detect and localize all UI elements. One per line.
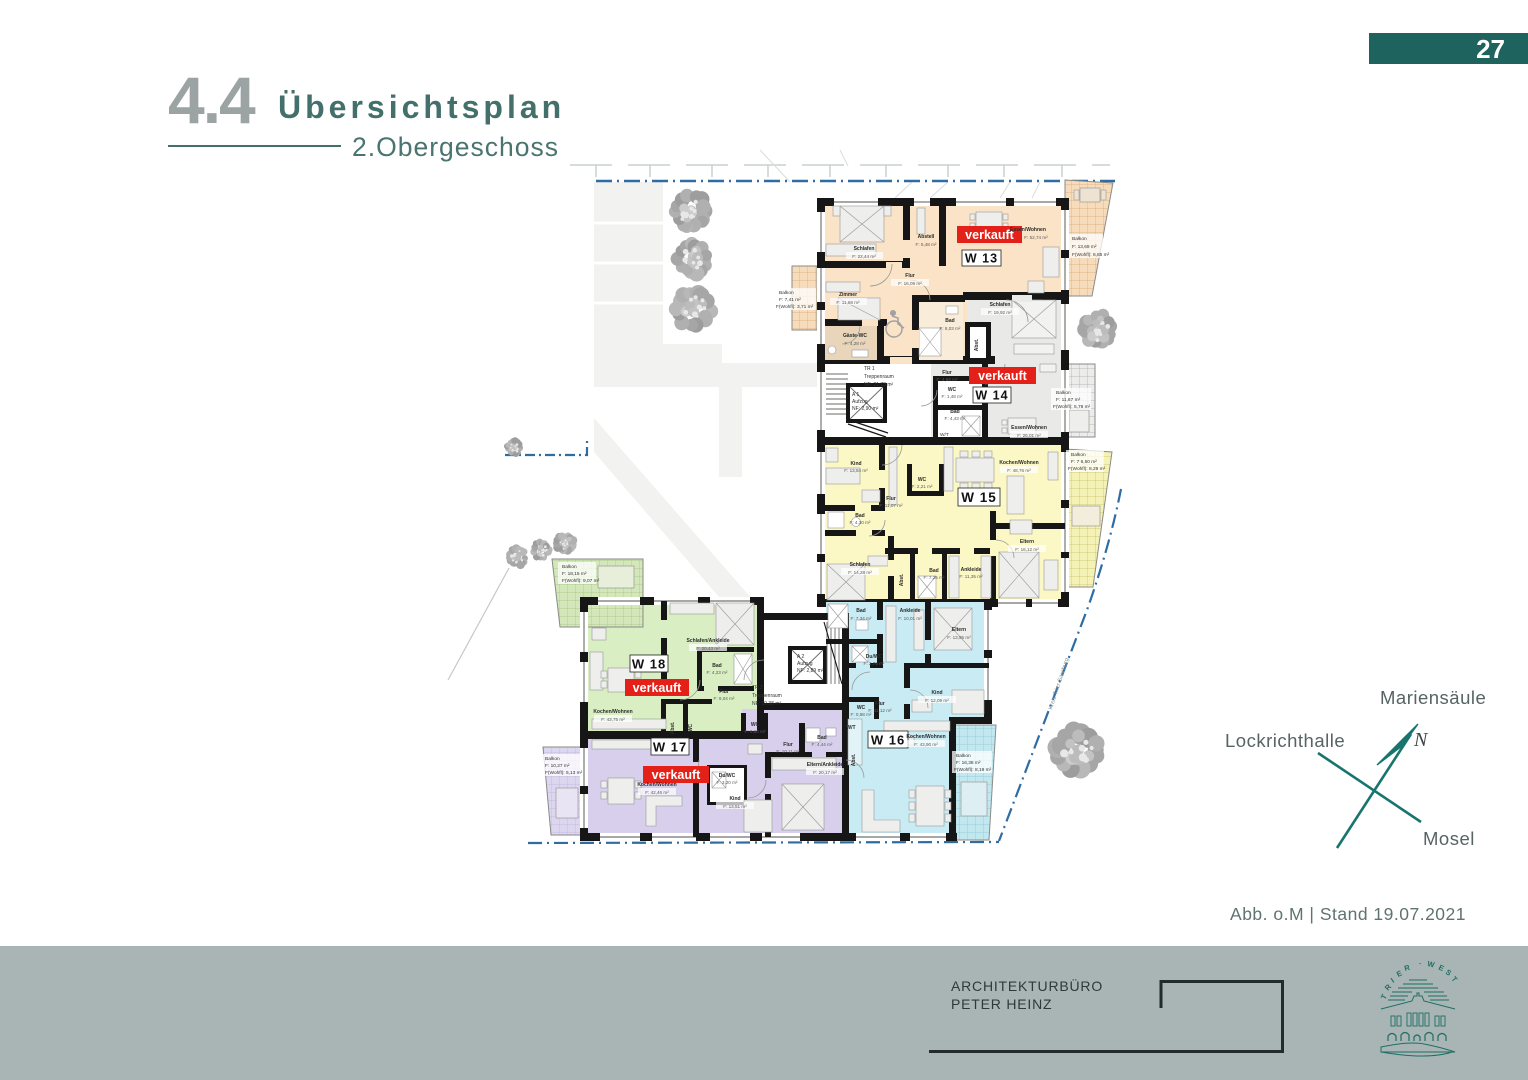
svg-text:Kochen/Wohnen: Kochen/Wohnen bbox=[637, 782, 676, 788]
svg-text:W 18: W 18 bbox=[632, 657, 666, 672]
svg-text:F: 52,74 m²: F: 52,74 m² bbox=[1024, 235, 1048, 240]
svg-text:W 17: W 17 bbox=[653, 740, 687, 755]
svg-text:W 15: W 15 bbox=[961, 490, 997, 505]
svg-text:F: 42,46 m²: F: 42,46 m² bbox=[645, 790, 669, 795]
svg-text:F(Wohfl): 5,78 m²: F(Wohfl): 5,78 m² bbox=[1053, 404, 1091, 410]
svg-text:F: 1,48 m²: F: 1,48 m² bbox=[942, 394, 963, 399]
svg-text:Du/WC: Du/WC bbox=[866, 654, 883, 660]
svg-text:Bad: Bad bbox=[712, 663, 721, 669]
svg-text:TR 1: TR 1 bbox=[864, 366, 875, 372]
svg-text:WC: WC bbox=[751, 722, 760, 728]
svg-text:W/T: W/T bbox=[940, 432, 949, 438]
svg-text:F: 11,07 m²: F: 11,07 m² bbox=[879, 503, 903, 508]
svg-text:F: 10,01 m²: F: 10,01 m² bbox=[898, 616, 922, 621]
svg-text:F: 4,28 m²: F: 4,28 m² bbox=[845, 341, 866, 346]
svg-text:Übersichtsplan: Übersichtsplan bbox=[278, 89, 565, 125]
svg-text:F: 48,76 m²: F: 48,76 m² bbox=[1007, 468, 1031, 473]
svg-text:F: 19,92 m²: F: 19,92 m² bbox=[988, 310, 1012, 315]
svg-text:NF: 19,38 m²: NF: 19,38 m² bbox=[752, 701, 782, 707]
svg-text:F: 14,28 m²: F: 14,28 m² bbox=[848, 570, 872, 575]
svg-text:F: 3,20 m²: F: 3,20 m² bbox=[717, 780, 738, 785]
svg-text:2.Obergeschoss: 2.Obergeschoss bbox=[352, 132, 559, 162]
svg-text:F(Wohfl): 9,07 m²: F(Wohfl): 9,07 m² bbox=[562, 578, 600, 584]
svg-text:Balkon: Balkon bbox=[1071, 452, 1086, 458]
svg-text:F: 4,69 m²: F: 4,69 m² bbox=[937, 377, 958, 382]
svg-text:WC: WC bbox=[948, 387, 957, 393]
svg-text:F: 13,69 m²: F: 13,69 m² bbox=[1072, 244, 1097, 250]
svg-text:Du/WC: Du/WC bbox=[719, 773, 736, 779]
svg-text:F: 0,60 m²: F: 0,60 m² bbox=[745, 729, 766, 734]
svg-text:Abst.: Abst. bbox=[974, 338, 980, 351]
svg-text:F: 20,43 m²: F: 20,43 m² bbox=[696, 646, 720, 651]
svg-text:F: 7,34 m²: F: 7,34 m² bbox=[851, 616, 872, 621]
svg-text:F: 10,11 m²: F: 10,11 m² bbox=[776, 749, 800, 754]
svg-text:F: 4,30 m²: F: 4,30 m² bbox=[850, 520, 871, 525]
svg-text:F: 7,25 m²: F: 7,25 m² bbox=[924, 575, 945, 580]
svg-text:WC: WC bbox=[857, 705, 866, 711]
svg-text:F(Wohfl): 8,29 m²: F(Wohfl): 8,29 m² bbox=[1068, 466, 1106, 472]
svg-text:F: 13,84 m²: F: 13,84 m² bbox=[844, 468, 868, 473]
svg-text:verkauft: verkauft bbox=[978, 369, 1027, 383]
svg-text:WC: WC bbox=[918, 477, 927, 483]
svg-text:F: 26,01 m²: F: 26,01 m² bbox=[1017, 433, 1041, 438]
svg-text:Flur: Flur bbox=[875, 701, 884, 707]
svg-text:Abstell: Abstell bbox=[918, 234, 935, 240]
svg-text:Flur: Flur bbox=[886, 496, 895, 502]
svg-text:Essen/Wohnen: Essen/Wohnen bbox=[1011, 425, 1047, 431]
svg-text:F: 11,68 m²: F: 11,68 m² bbox=[836, 300, 860, 305]
svg-text:NF: 2,90 m²: NF: 2,90 m² bbox=[852, 406, 879, 412]
svg-text:Kochen/Wohnen: Kochen/Wohnen bbox=[593, 709, 632, 715]
svg-text:F: 11,87 m²: F: 11,87 m² bbox=[1056, 397, 1081, 403]
svg-text:F: 16,09 m²: F: 16,09 m² bbox=[898, 281, 922, 286]
svg-text:F: 43,75 m²: F: 43,75 m² bbox=[601, 717, 625, 722]
svg-text:F: 20,17 m²: F: 20,17 m² bbox=[813, 770, 837, 775]
svg-text:F: 12,09 m²: F: 12,09 m² bbox=[925, 698, 949, 703]
svg-text:F: 4,44 m²: F: 4,44 m² bbox=[812, 742, 833, 747]
svg-text:Flur: Flur bbox=[719, 689, 728, 695]
svg-text:F: 0,98 m²: F: 0,98 m² bbox=[851, 712, 872, 717]
svg-text:Balkon: Balkon bbox=[562, 564, 577, 570]
svg-text:Schlafen: Schlafen bbox=[854, 246, 875, 252]
svg-text:Kochen/Wohnen: Kochen/Wohnen bbox=[999, 460, 1038, 466]
svg-text:Kochen/Wohnen: Kochen/Wohnen bbox=[906, 734, 945, 740]
svg-text:·: · bbox=[1419, 959, 1422, 968]
svg-text:F: 11,35 m²: F: 11,35 m² bbox=[959, 574, 983, 579]
svg-text:Bad: Bad bbox=[950, 409, 959, 415]
svg-text:F: 2,21 m²: F: 2,21 m² bbox=[912, 484, 933, 489]
svg-text:Mosel: Mosel bbox=[1423, 828, 1475, 849]
svg-text:F: 10,27 m²: F: 10,27 m² bbox=[545, 763, 570, 769]
svg-text:F: 22,44 m²: F: 22,44 m² bbox=[852, 254, 876, 259]
svg-text:N: N bbox=[1413, 729, 1429, 751]
svg-text:F: 13,95 m²: F: 13,95 m² bbox=[947, 635, 971, 640]
svg-text:Aufzug: Aufzug bbox=[852, 399, 868, 405]
svg-text:Bad: Bad bbox=[945, 318, 954, 324]
svg-text:Ankleide: Ankleide bbox=[900, 608, 921, 614]
svg-text:F(Wohfl): 3,71 m²: F(Wohfl): 3,71 m² bbox=[776, 304, 814, 310]
svg-text:Schlafen: Schlafen bbox=[850, 562, 871, 568]
svg-text:F: 43,90 m²: F: 43,90 m² bbox=[914, 742, 938, 747]
svg-text:Lockrichthalle: Lockrichthalle bbox=[1225, 730, 1345, 751]
svg-text:Abb. o.M | Stand 19.07.2021: Abb. o.M | Stand 19.07.2021 bbox=[1230, 904, 1466, 924]
svg-text:Schlafen: Schlafen bbox=[990, 302, 1011, 308]
svg-text:Balkon: Balkon bbox=[956, 753, 971, 759]
svg-text:A 2: A 2 bbox=[797, 654, 804, 660]
svg-text:Kind: Kind bbox=[850, 461, 861, 467]
svg-text:Mariensäule: Mariensäule bbox=[1380, 687, 1486, 708]
svg-text:F: 4,23 m²: F: 4,23 m² bbox=[707, 670, 728, 675]
svg-text:F: 2,76 m²: F: 2,76 m² bbox=[864, 661, 885, 666]
svg-text:Eltern: Eltern bbox=[952, 627, 966, 633]
svg-text:F: 11,12 m²: F: 11,12 m² bbox=[868, 708, 892, 713]
svg-text:Abst.: Abst. bbox=[851, 753, 857, 766]
svg-text:Flur: Flur bbox=[783, 742, 792, 748]
svg-text:Bad: Bad bbox=[929, 568, 938, 574]
svg-text:ARCHITEKTURBÜRO: ARCHITEKTURBÜRO bbox=[951, 977, 1103, 994]
svg-text:Aufzug: Aufzug bbox=[797, 661, 813, 667]
svg-text:F: 16,38 m²: F: 16,38 m² bbox=[956, 760, 981, 766]
svg-text:Zimmer: Zimmer bbox=[839, 292, 857, 298]
svg-text:Flur: Flur bbox=[942, 370, 951, 376]
svg-text:Essen/Wohnen: Essen/Wohnen bbox=[1010, 227, 1046, 233]
svg-text:Kind: Kind bbox=[931, 690, 942, 696]
svg-text:Bad: Bad bbox=[855, 513, 864, 519]
svg-text:verkauft: verkauft bbox=[652, 768, 701, 782]
svg-text:W/T: W/T bbox=[846, 725, 855, 731]
svg-text:Balkon: Balkon bbox=[1056, 390, 1071, 396]
svg-text:Balkon: Balkon bbox=[779, 290, 794, 296]
svg-text:F: 4,43 m²: F: 4,43 m² bbox=[945, 416, 966, 421]
svg-text:F: 18,15 m²: F: 18,15 m² bbox=[562, 571, 587, 577]
svg-text:Balkon: Balkon bbox=[1072, 236, 1087, 242]
svg-text:NF: 21,73 m²: NF: 21,73 m² bbox=[864, 382, 894, 388]
svg-text:F: 5,48 m²: F: 5,48 m² bbox=[916, 242, 937, 247]
svg-text:F: 8,03 m²: F: 8,03 m² bbox=[940, 326, 961, 331]
svg-text:F: 16,12 m²: F: 16,12 m² bbox=[1015, 547, 1039, 552]
svg-text:Flur: Flur bbox=[905, 273, 914, 279]
svg-text:F(Wohfl): 5,13 m²: F(Wohfl): 5,13 m² bbox=[545, 770, 583, 776]
svg-text:F: 13,51 m²: F: 13,51 m² bbox=[723, 804, 747, 809]
svg-text:TR 2: TR 2 bbox=[752, 685, 763, 691]
svg-text:Ankleide: Ankleide bbox=[961, 567, 982, 573]
svg-text:F(Wohfl): 6,85 m²: F(Wohfl): 6,85 m² bbox=[1072, 252, 1110, 258]
svg-text:Bad: Bad bbox=[856, 608, 865, 614]
svg-text:W 13: W 13 bbox=[965, 252, 998, 266]
svg-text:NF: 2,89 m²: NF: 2,89 m² bbox=[797, 668, 824, 674]
svg-text:F: 7 6,50 m²: F: 7 6,50 m² bbox=[1071, 459, 1097, 465]
svg-text:W 16: W 16 bbox=[871, 733, 905, 748]
svg-text:verkauft: verkauft bbox=[965, 228, 1014, 242]
svg-text:F: 9,04 m²: F: 9,04 m² bbox=[714, 696, 735, 701]
svg-text:27: 27 bbox=[1476, 34, 1505, 64]
svg-text:Eltern/Ankleide: Eltern/Ankleide bbox=[807, 762, 844, 768]
svg-text:PETER HEINZ: PETER HEINZ bbox=[951, 996, 1052, 1012]
svg-text:Eltern: Eltern bbox=[1020, 539, 1034, 545]
svg-text:Abst.: Abst. bbox=[670, 721, 676, 734]
svg-text:Bad: Bad bbox=[817, 735, 826, 741]
svg-text:Treppenraum: Treppenraum bbox=[752, 693, 782, 699]
svg-text:W 14: W 14 bbox=[975, 389, 1008, 403]
svg-text:Gäste-WC: Gäste-WC bbox=[843, 333, 867, 339]
svg-text:F(Wohfl): 8,19 m²: F(Wohfl): 8,19 m² bbox=[954, 767, 992, 773]
svg-text:Kind: Kind bbox=[729, 796, 740, 802]
svg-text:A 1: A 1 bbox=[852, 392, 859, 398]
svg-text:Treppenraum: Treppenraum bbox=[864, 374, 894, 380]
svg-text:WC: WC bbox=[688, 723, 694, 732]
svg-text:Schlafen/Ankleide: Schlafen/Ankleide bbox=[686, 638, 729, 644]
svg-text:Balkon: Balkon bbox=[545, 756, 560, 762]
svg-text:Abst.: Abst. bbox=[899, 573, 905, 586]
svg-text:F: 7,41 m²: F: 7,41 m² bbox=[779, 297, 801, 303]
svg-text:verkauft: verkauft bbox=[633, 681, 682, 695]
svg-text:4.4: 4.4 bbox=[168, 63, 256, 137]
